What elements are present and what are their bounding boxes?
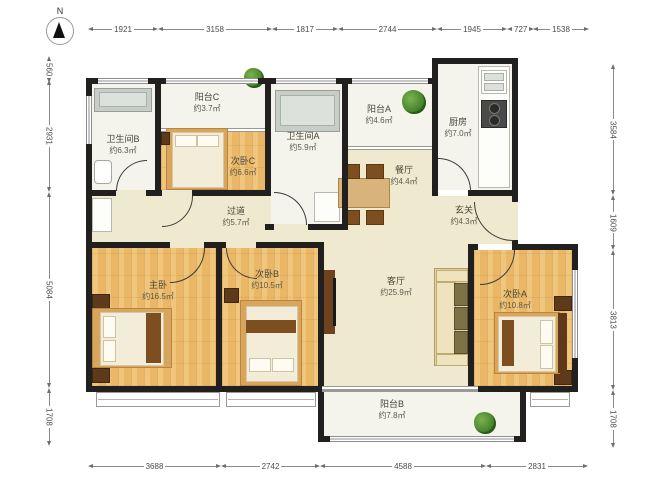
pillow (175, 135, 197, 147)
north-arrow-icon (53, 22, 65, 38)
room-label-bed-c: 次卧C约6.6㎡ (229, 156, 256, 178)
sofa-armrest (436, 354, 468, 366)
plant (474, 412, 496, 434)
wall (318, 242, 324, 386)
wall (512, 58, 518, 202)
dim-bottom-0: 3688 (88, 461, 221, 471)
dim-top-1: 3158 (158, 24, 272, 34)
headboard (558, 313, 567, 373)
room-label-bath-a: 卫生间A约5.9㎡ (286, 131, 319, 153)
room-label-dining: 餐厅约4.4㎡ (390, 165, 417, 187)
room-label-living: 客厅约25.9㎡ (380, 276, 412, 298)
window (166, 78, 258, 84)
wall (342, 84, 348, 230)
dim-top-2: 1817 (272, 24, 338, 34)
dim-left-3: 1708 (44, 388, 54, 446)
slider-balcony-b (322, 386, 478, 392)
wall (468, 250, 474, 386)
wall (520, 386, 526, 442)
bay-window (226, 392, 316, 407)
wall (318, 386, 324, 442)
dim-bottom-1: 2742 (221, 461, 320, 471)
room-label-kitchen: 厨房约7.0㎡ (444, 117, 471, 139)
dim-top-0: 1921 (88, 24, 158, 34)
wall (308, 224, 348, 230)
pillow (103, 340, 116, 362)
wall (155, 84, 161, 190)
pillow (197, 135, 219, 147)
dim-top-3: 2744 (338, 24, 437, 34)
dim-right-3: 1708 (608, 390, 618, 448)
window (330, 436, 514, 442)
sofa-cushion (454, 283, 468, 306)
wall (192, 190, 271, 196)
dim-bottom-3: 2831 (486, 461, 588, 471)
wall (155, 190, 162, 196)
bay-window (530, 392, 570, 407)
dim-right-1: 1609 (608, 195, 618, 250)
wall (468, 190, 518, 196)
sink-basin (484, 73, 504, 81)
dim-left-0: 560 (44, 56, 54, 80)
washer (314, 192, 340, 222)
room-label-balcony-b: 阳台B约7.8㎡ (378, 399, 405, 421)
hall-cabinet (92, 198, 112, 232)
pillow (103, 316, 116, 338)
room-label-balcony-a: 阳台A约4.6㎡ (365, 104, 392, 126)
exterior-cover (518, 52, 580, 244)
window (86, 96, 92, 144)
dim-right-0: 3584 (608, 64, 618, 195)
bathtub-inner (99, 92, 147, 107)
bed-runner (246, 320, 296, 333)
north-compass: N (40, 6, 80, 52)
tv (333, 278, 336, 326)
room-label-entry: 玄关约4.3㎡ (450, 205, 477, 227)
wall (86, 242, 170, 248)
nightstand (554, 296, 572, 311)
dim-top-6: 1538 (533, 24, 589, 34)
slider-balcony-a (348, 146, 432, 150)
room-label-bed-b: 次卧B约10.5㎡ (251, 269, 283, 291)
dim-left-1: 2931 (44, 80, 54, 192)
sofa-cushion (454, 307, 468, 330)
wall (204, 242, 226, 248)
wall (265, 84, 271, 196)
dim-top-5: 727 (507, 24, 533, 34)
pillow (540, 345, 553, 369)
room-label-master: 主卧约16.5㎡ (142, 280, 174, 302)
sofa-seat (436, 282, 456, 354)
window (352, 78, 428, 84)
wall (514, 244, 578, 250)
plant (402, 90, 426, 114)
sofa-cushion (454, 331, 468, 354)
dim-bottom-2: 4588 (320, 461, 486, 471)
bathtub-inner (280, 95, 335, 126)
nightstand (92, 368, 110, 383)
pillow (540, 320, 553, 344)
wall (265, 224, 274, 230)
room-label-balcony-c: 阳台C约3.7㎡ (193, 92, 220, 114)
room-label-bath-b: 卫生间B约6.3㎡ (106, 134, 139, 156)
chair (366, 164, 384, 179)
pillow (272, 358, 294, 372)
dim-left-2: 5084 (44, 192, 54, 388)
sink-basin (484, 83, 504, 91)
floor-plan: 阳台C约3.7㎡ 卫生间B约6.3㎡ 次卧C约6.6㎡ 卫生间A约5.9㎡ 阳台… (0, 0, 667, 500)
room-label-corridor: 过道约5.7㎡ (222, 206, 249, 228)
toilet (94, 160, 112, 184)
wall (432, 58, 518, 64)
bed-runner (146, 313, 161, 363)
wall (86, 190, 116, 196)
sofa-armrest (436, 270, 468, 282)
window (98, 78, 148, 84)
dim-top-4: 1945 (437, 24, 507, 34)
room-label-bed-a: 次卧A约10.8㎡ (499, 289, 531, 311)
nightstand (92, 294, 110, 309)
compass-circle (46, 17, 74, 45)
pillow (249, 358, 271, 372)
bay-window (96, 392, 220, 407)
bed-runner (502, 320, 514, 366)
north-label: N (40, 6, 80, 16)
dim-right-2: 3813 (608, 250, 618, 390)
burner (489, 103, 500, 114)
window (276, 78, 336, 84)
nightstand (224, 288, 239, 303)
burner (489, 115, 500, 126)
wall (216, 242, 222, 386)
wall (256, 242, 324, 248)
nightstand (161, 132, 170, 145)
window (572, 270, 578, 358)
chair (366, 210, 384, 225)
